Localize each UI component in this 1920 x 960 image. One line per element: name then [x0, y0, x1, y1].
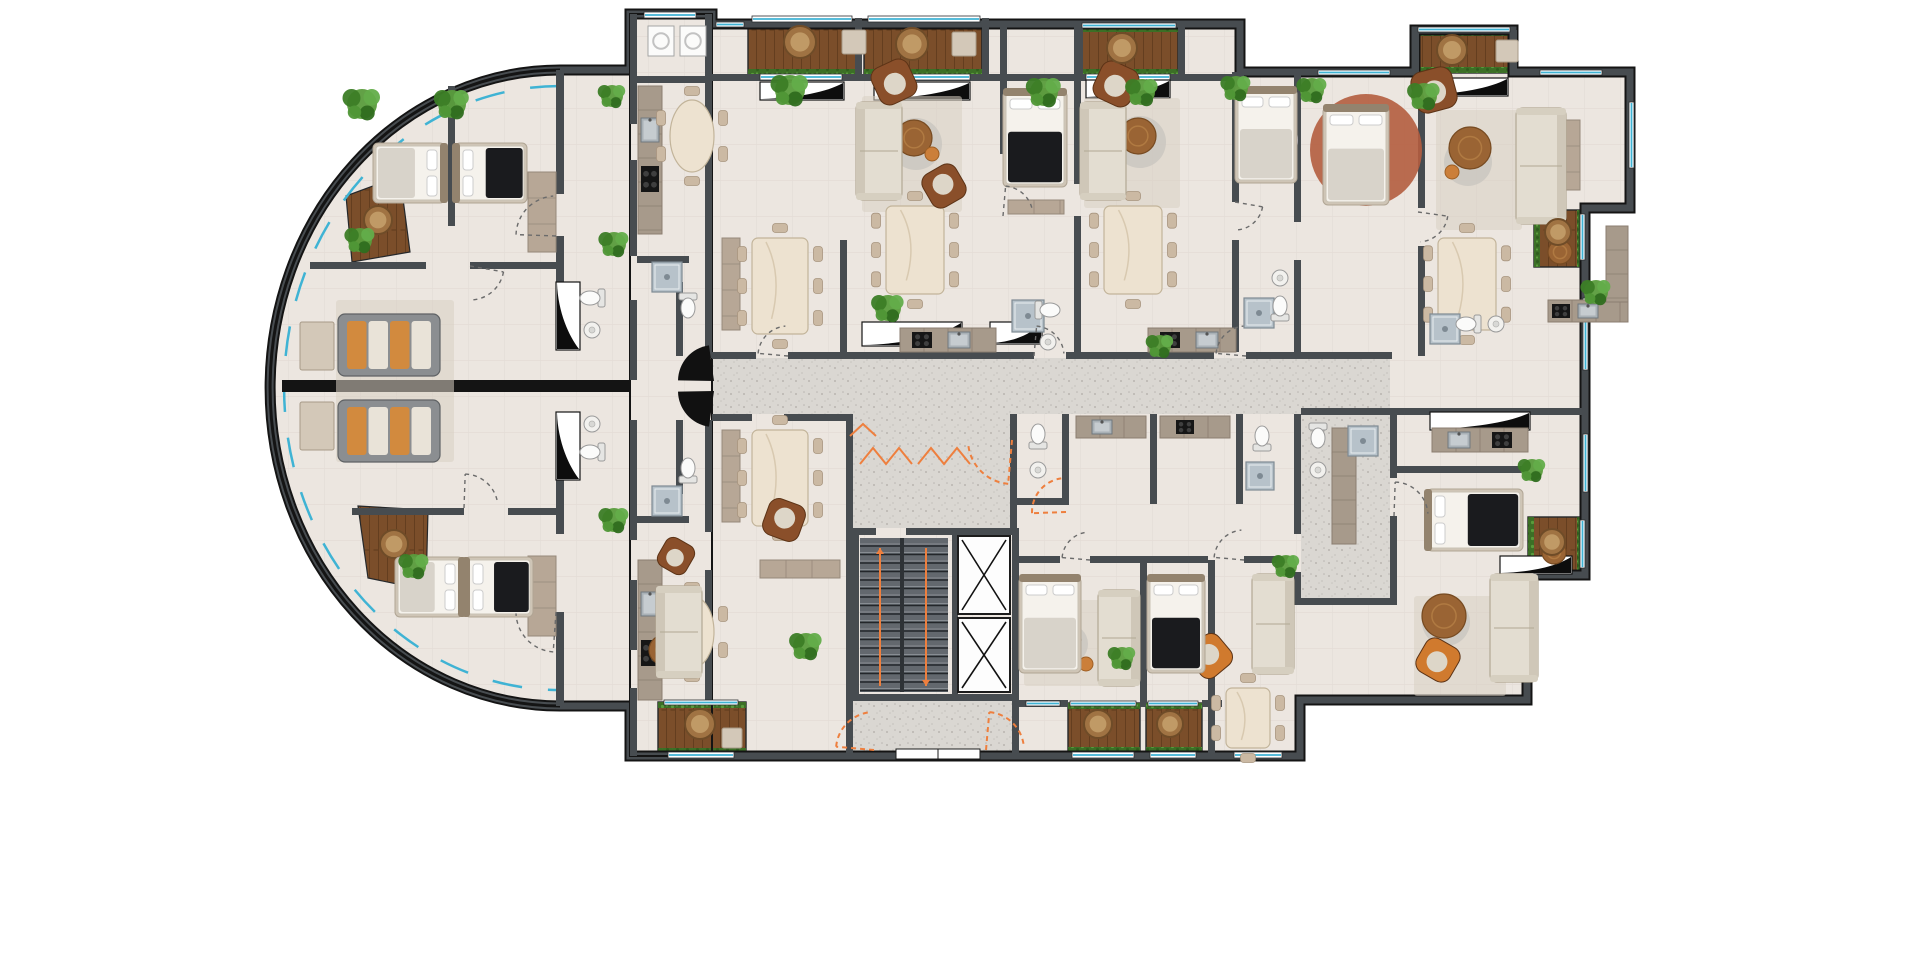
shower: [1348, 426, 1378, 456]
wall: [630, 420, 637, 540]
cabinet: [760, 560, 840, 578]
wicker-chair: [1084, 710, 1112, 738]
wall: [852, 528, 859, 700]
sofa: [656, 586, 702, 678]
round-table: [1422, 594, 1466, 638]
stool: [1445, 165, 1459, 179]
sofa: [1098, 590, 1140, 686]
wall: [1066, 352, 1214, 359]
window: [668, 752, 734, 758]
wall: [906, 528, 1018, 535]
wall: [1178, 26, 1185, 76]
wall: [1074, 216, 1081, 352]
stove-icon: [641, 166, 659, 192]
wall: [1246, 352, 1392, 359]
side-table: [952, 32, 976, 56]
bed: [1019, 574, 1081, 673]
corridor-segment: [851, 414, 1010, 528]
shower: [652, 262, 682, 292]
wall: [630, 580, 637, 650]
wall: [1418, 246, 1425, 356]
wall: [1016, 556, 1060, 563]
sofa: [856, 102, 902, 200]
kitchen-sink-icon: [1578, 304, 1598, 318]
wall: [637, 76, 712, 83]
sofa: [1252, 574, 1294, 674]
stove-icon: [1492, 432, 1512, 448]
wicker-chair: [784, 26, 816, 58]
window: [716, 22, 744, 27]
bed: [1235, 86, 1297, 183]
wall: [846, 414, 853, 756]
side-table: [1496, 40, 1518, 62]
wall: [630, 14, 637, 124]
plant-icon: [343, 89, 381, 121]
curtain-door-icon: [556, 282, 580, 350]
wall: [1294, 414, 1301, 534]
floor-plan: [0, 0, 1920, 960]
wall: [705, 420, 712, 532]
wall: [508, 508, 558, 515]
laundry-appliance-icon: [680, 26, 706, 56]
laundry-appliance-icon: [648, 26, 674, 56]
wall: [982, 18, 989, 76]
stool: [925, 147, 939, 161]
wall: [1010, 414, 1017, 528]
core: [860, 536, 1010, 692]
window: [1072, 752, 1134, 758]
wicker-chair: [685, 709, 715, 739]
wicker-chair: [380, 530, 408, 558]
wall: [556, 612, 564, 706]
wall: [712, 352, 756, 359]
side-table: [300, 402, 334, 450]
sink-icon: [1030, 462, 1046, 478]
kitchen-counter: [1432, 428, 1528, 452]
wicker-chair: [1157, 711, 1183, 737]
elevator: [958, 536, 1010, 614]
wall: [1301, 408, 1396, 415]
wall: [1150, 414, 1157, 504]
stove-icon: [1552, 304, 1570, 318]
window: [1148, 701, 1198, 706]
floor-plan-stage: [0, 0, 1920, 960]
window: [868, 16, 980, 22]
cabinet: [528, 172, 556, 252]
wall: [637, 516, 689, 523]
wall: [1140, 700, 1146, 707]
sofa: [1080, 102, 1126, 200]
kitchen-sink-icon: [1092, 420, 1112, 434]
wall: [1140, 560, 1147, 703]
sink-icon: [584, 322, 600, 338]
wall: [1062, 414, 1069, 504]
sofa: [1516, 108, 1566, 224]
window: [752, 16, 852, 22]
window: [1082, 23, 1176, 28]
window: [664, 700, 738, 705]
window: [1580, 520, 1585, 568]
wall: [352, 508, 464, 515]
bed: [1147, 574, 1205, 673]
sink-icon: [1272, 270, 1288, 286]
side-table: [300, 322, 334, 370]
party-wall: [282, 380, 630, 392]
wall: [712, 414, 752, 421]
window: [1629, 102, 1634, 168]
stove-icon: [912, 332, 932, 348]
wall: [788, 352, 1034, 359]
window: [1418, 27, 1510, 32]
cabinet: [1008, 200, 1064, 214]
shower: [1246, 462, 1274, 490]
kitchen-sink-icon: [1196, 332, 1218, 348]
window: [1318, 70, 1390, 75]
wall: [630, 160, 637, 256]
bed: [1323, 104, 1389, 205]
elevator: [958, 618, 1010, 692]
wall: [630, 688, 637, 756]
wall: [1016, 498, 1069, 505]
corridor-segment: [851, 700, 1012, 753]
sink-icon: [1040, 334, 1056, 350]
sink-icon: [1310, 462, 1326, 478]
window: [1583, 434, 1588, 492]
sofa: [338, 314, 440, 376]
stove-icon: [1176, 420, 1194, 434]
window: [1026, 701, 1060, 706]
window: [1150, 752, 1196, 758]
wicker-chair: [896, 28, 928, 60]
kitchen-counter: [1160, 416, 1230, 438]
sink-icon: [584, 416, 600, 432]
bed: [462, 557, 533, 617]
bed: [1424, 489, 1523, 551]
stair-stringer: [900, 538, 904, 692]
sofa: [1490, 574, 1538, 682]
sofa: [338, 400, 440, 462]
bed: [373, 143, 448, 203]
wicker-chair: [1107, 33, 1137, 63]
wicker-chair: [1437, 35, 1467, 65]
bed: [452, 143, 527, 203]
window: [1540, 70, 1602, 75]
wall: [852, 694, 1018, 701]
wall: [705, 244, 712, 358]
wall: [840, 240, 847, 352]
sink-icon: [1488, 316, 1504, 332]
kitchen-sink-icon: [1448, 432, 1470, 448]
wall: [1390, 414, 1397, 478]
wall: [1294, 598, 1397, 605]
wall: [1396, 466, 1526, 473]
window: [1580, 214, 1585, 260]
round-table: [1449, 127, 1491, 169]
wall: [1090, 556, 1208, 563]
side-table: [722, 728, 742, 748]
main-entrance: [896, 749, 980, 759]
shower: [1430, 314, 1460, 344]
window: [644, 12, 696, 18]
window: [1070, 701, 1136, 706]
corridor-segment: [712, 358, 1390, 414]
kitchen-counter: [1606, 226, 1628, 302]
wall: [784, 414, 848, 421]
curtain-door-icon: [556, 412, 580, 480]
kitchen-sink-icon: [948, 332, 970, 348]
wicker-chair: [1545, 219, 1571, 245]
wall: [630, 300, 637, 380]
curtain-door-icon: [1430, 412, 1530, 430]
wall: [1236, 414, 1243, 504]
wall: [1294, 260, 1301, 356]
wall: [1390, 516, 1397, 602]
shower: [652, 486, 682, 516]
wall: [310, 262, 426, 269]
wall: [556, 70, 564, 194]
wicker-chair: [1539, 529, 1565, 555]
wall: [470, 262, 558, 269]
shower: [1244, 298, 1274, 328]
side-table: [842, 30, 866, 54]
wall: [1412, 30, 1419, 74]
